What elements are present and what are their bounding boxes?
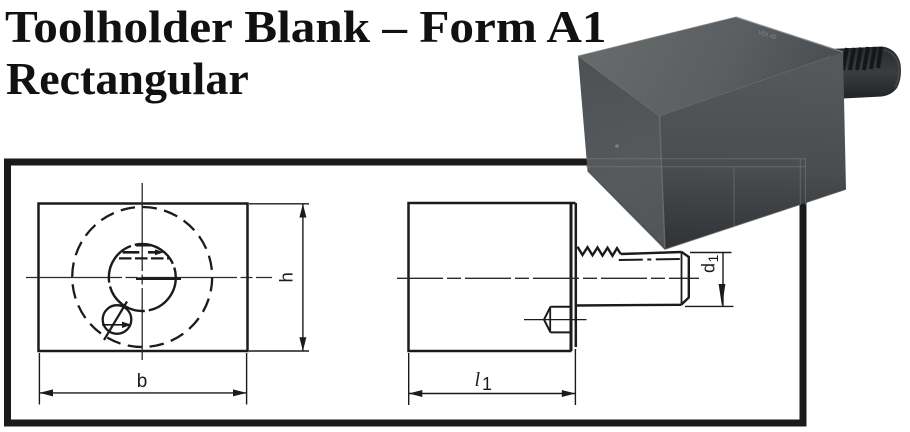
svg-text:Toolholder Blank – Form A1: Toolholder Blank – Form A1 — [5, 2, 607, 52]
svg-text:h: h — [276, 272, 297, 282]
svg-text:Rectangular: Rectangular — [6, 53, 249, 104]
svg-text:1: 1 — [705, 255, 721, 263]
svg-text:l: l — [475, 369, 481, 391]
svg-text:d: d — [699, 263, 719, 273]
svg-text:b: b — [137, 371, 148, 392]
svg-text:1: 1 — [482, 374, 492, 394]
